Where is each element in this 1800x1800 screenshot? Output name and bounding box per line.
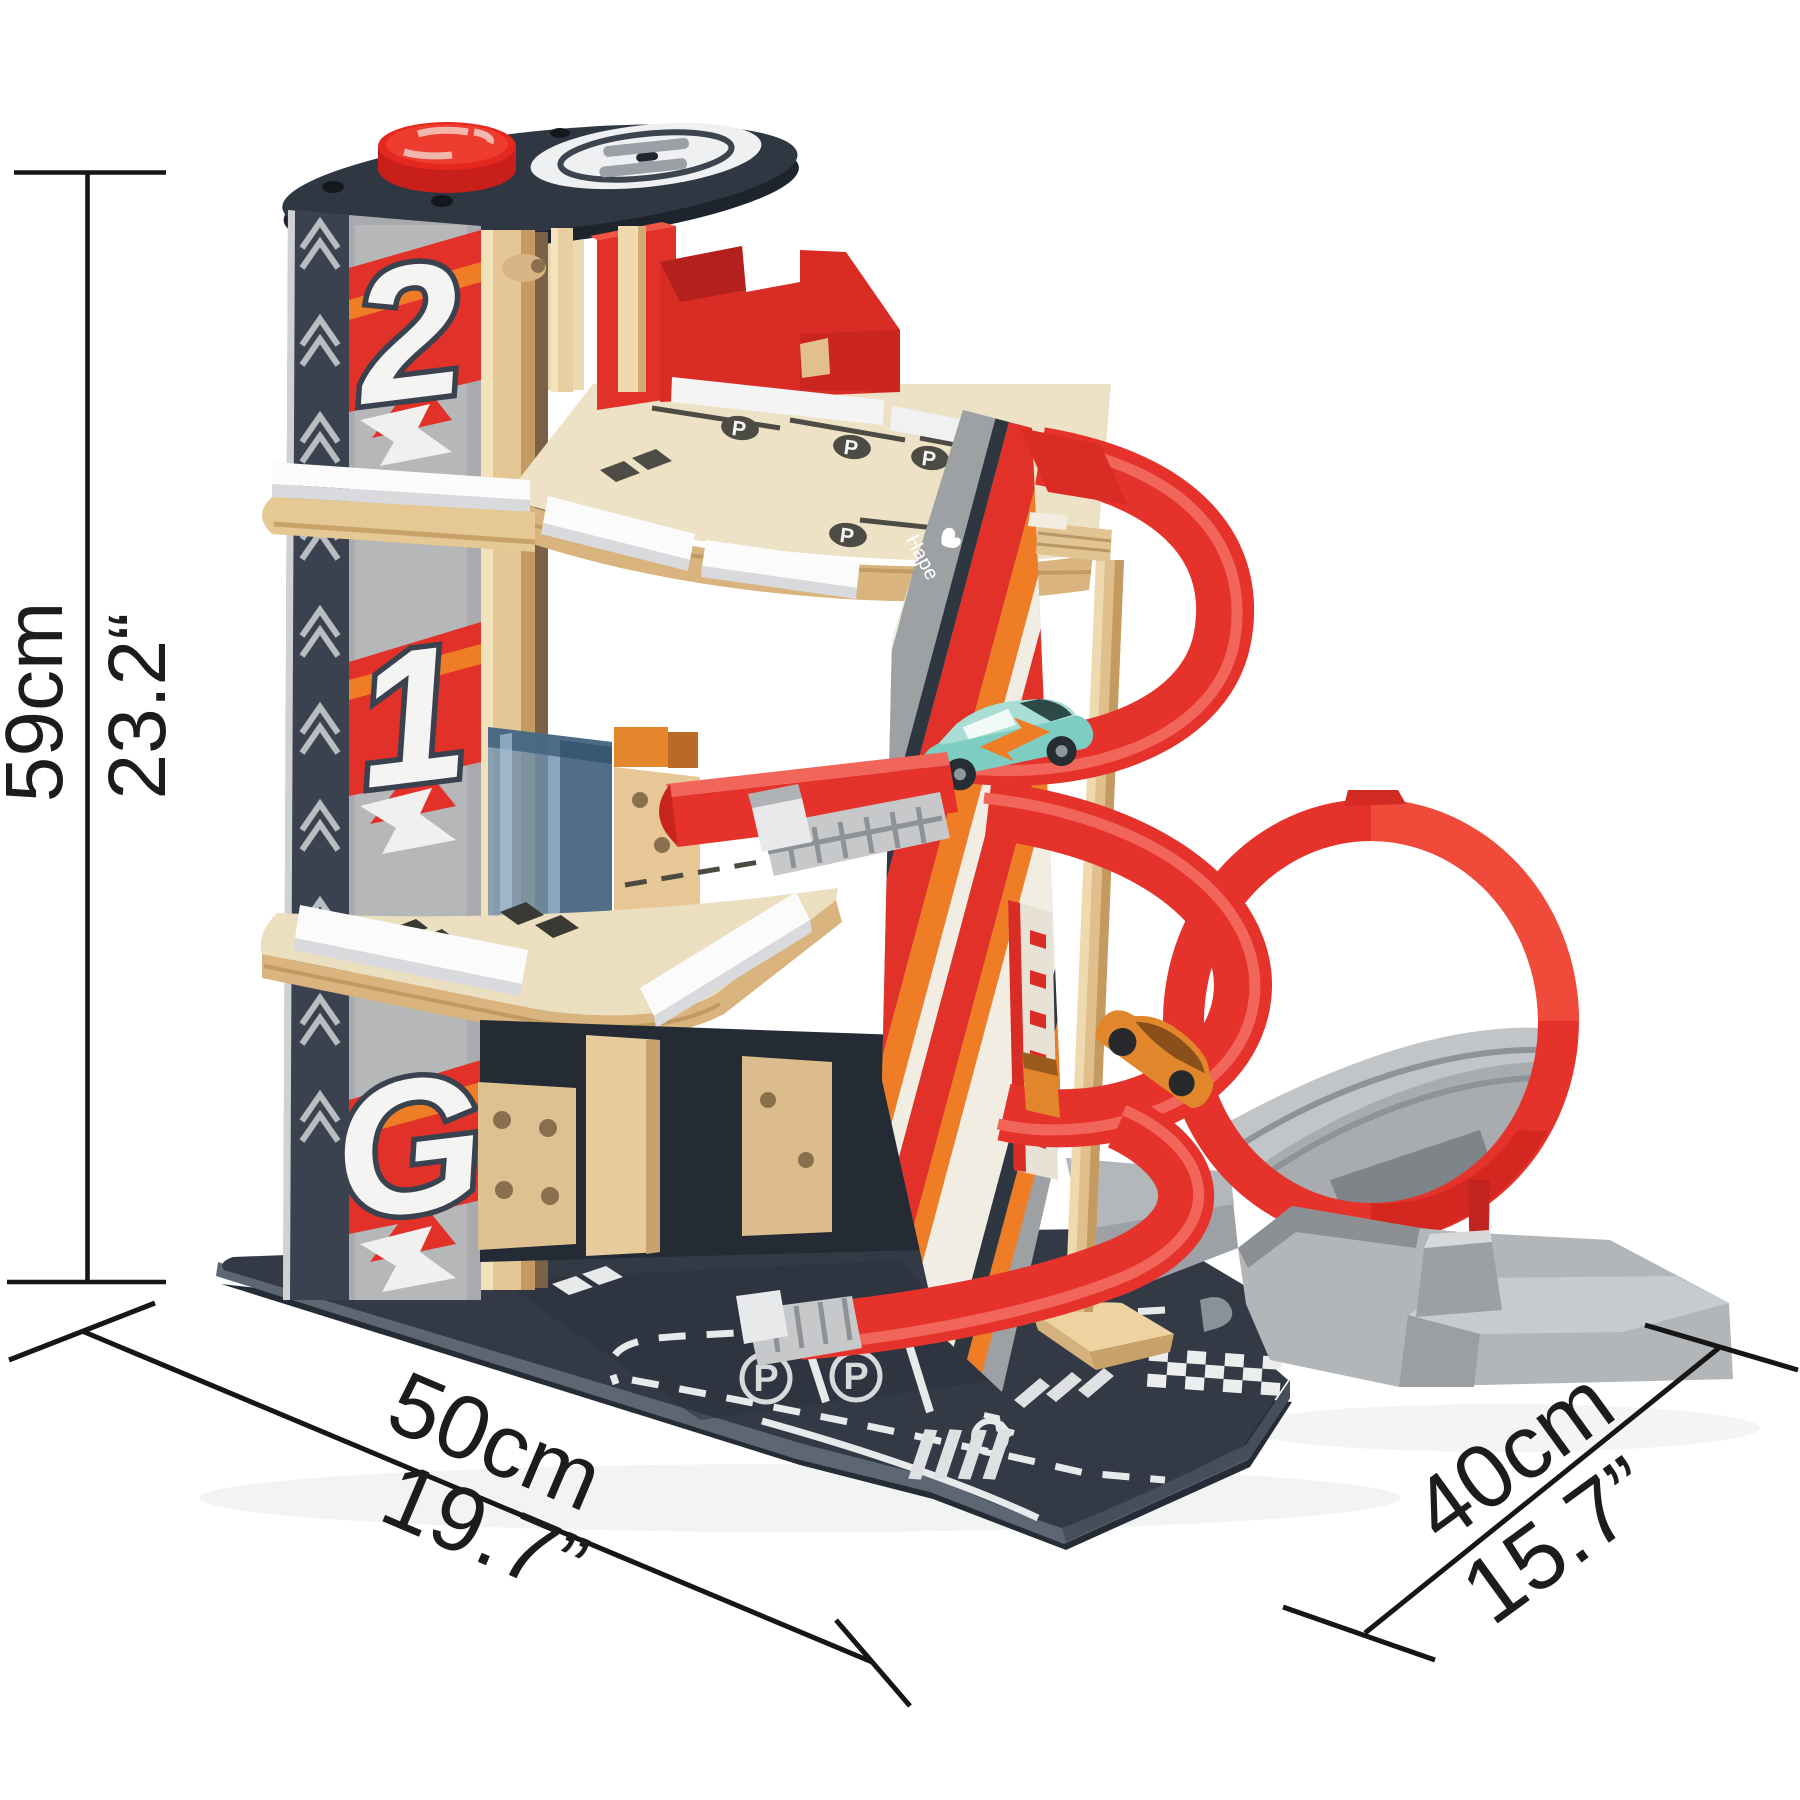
svg-text:59cm: 59cm [0, 602, 80, 803]
svg-text:23.2“: 23.2“ [92, 613, 183, 800]
svg-text:P: P [843, 1356, 868, 1398]
svg-text:G: G [322, 1033, 495, 1261]
